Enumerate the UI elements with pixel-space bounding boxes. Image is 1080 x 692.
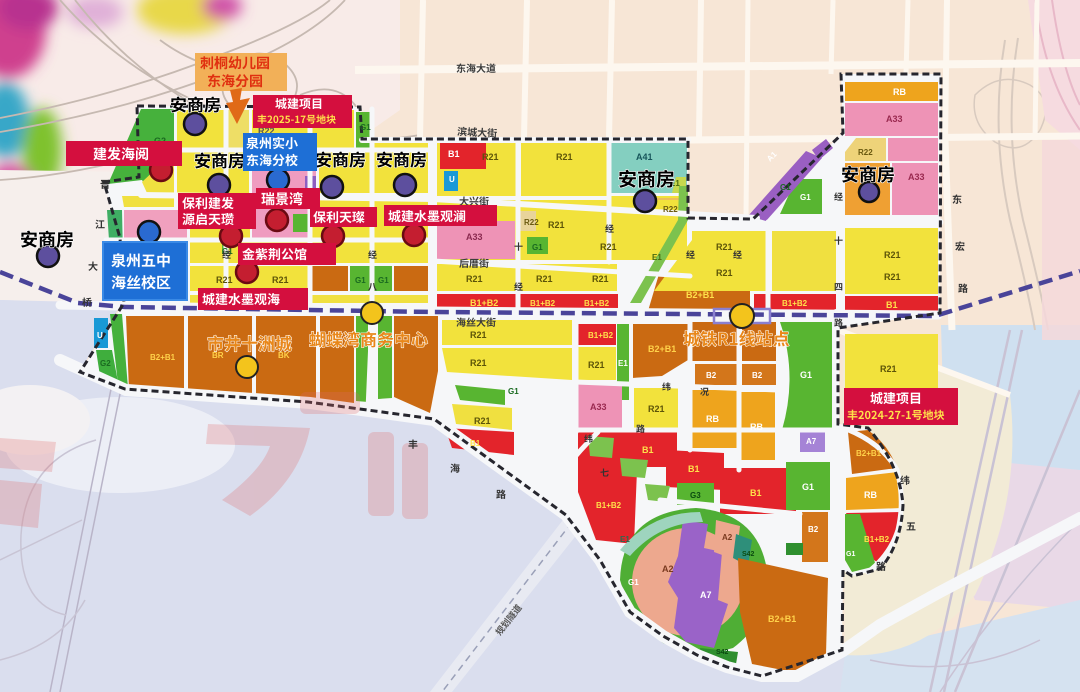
svg-text:R21: R21 (592, 274, 609, 284)
svg-text:B1+B2: B1+B2 (596, 501, 622, 510)
svg-text:R22: R22 (858, 148, 873, 157)
svg-text:G1: G1 (378, 276, 389, 285)
svg-text:B1+B2: B1+B2 (782, 299, 808, 308)
svg-text:E1: E1 (618, 359, 628, 368)
svg-text:E1: E1 (620, 535, 630, 544)
svg-text:R21: R21 (470, 358, 487, 368)
svg-text:B1: B1 (642, 445, 654, 455)
svg-text:BK: BK (278, 351, 290, 360)
svg-text:B2+B1: B2+B1 (686, 290, 714, 300)
svg-text:G1: G1 (846, 551, 855, 558)
svg-text:R21: R21 (884, 250, 901, 260)
svg-text:G1: G1 (532, 243, 543, 252)
svg-text:B1+B2: B1+B2 (864, 535, 890, 544)
svg-text:RB: RB (864, 490, 877, 500)
svg-text:B1: B1 (470, 439, 481, 448)
svg-text:R21: R21 (466, 274, 483, 284)
svg-text:R21: R21 (216, 275, 233, 285)
svg-text:RB: RB (893, 87, 906, 97)
svg-text:R21: R21 (600, 242, 617, 252)
svg-text:A7: A7 (806, 437, 817, 446)
svg-text:B2: B2 (706, 371, 717, 380)
svg-text:A41: A41 (636, 152, 653, 162)
svg-text:R21: R21 (482, 152, 499, 162)
svg-text:A7: A7 (700, 590, 712, 600)
svg-text:B1: B1 (886, 300, 898, 310)
svg-text:U: U (97, 331, 103, 340)
svg-text:B1+B2: B1+B2 (470, 298, 498, 308)
svg-text:G1: G1 (628, 578, 639, 587)
svg-text:RB: RB (750, 422, 763, 432)
svg-text:R22: R22 (663, 205, 678, 214)
svg-text:G2: G2 (100, 359, 111, 368)
svg-text:B2: B2 (752, 371, 763, 380)
svg-text:G1: G1 (800, 193, 811, 202)
svg-text:R21: R21 (474, 416, 491, 426)
svg-text:G1: G1 (800, 370, 812, 380)
svg-text:A33: A33 (590, 402, 607, 412)
svg-text:R21: R21 (716, 268, 733, 278)
svg-text:G1: G1 (355, 276, 366, 285)
svg-text:U: U (449, 175, 455, 184)
svg-text:R21: R21 (648, 404, 665, 414)
svg-text:S42: S42 (742, 551, 755, 558)
svg-text:B2+B1: B2+B1 (648, 344, 676, 354)
svg-text:R21: R21 (470, 330, 487, 340)
svg-text:R21: R21 (884, 272, 901, 282)
svg-text:G1: G1 (508, 387, 519, 396)
svg-text:R21: R21 (716, 242, 733, 252)
svg-text:B2+B1: B2+B1 (150, 353, 176, 362)
svg-text:G3: G3 (690, 491, 701, 500)
svg-text:B1+B2: B1+B2 (530, 299, 556, 308)
svg-text:R21: R21 (556, 152, 573, 162)
svg-text:B1+B2: B1+B2 (588, 331, 614, 340)
svg-text:B1+B2: B1+B2 (584, 299, 610, 308)
svg-text:G1: G1 (802, 482, 814, 492)
svg-text:B2+B1: B2+B1 (856, 449, 882, 458)
svg-text:B1: B1 (688, 464, 700, 474)
svg-text:S42: S42 (716, 649, 729, 656)
svg-text:R22: R22 (524, 218, 539, 227)
svg-text:E1: E1 (652, 253, 662, 262)
svg-text:A33: A33 (466, 232, 483, 242)
svg-text:B1: B1 (448, 149, 460, 159)
svg-text:A33: A33 (886, 114, 903, 124)
svg-text:G1: G1 (360, 123, 371, 132)
svg-text:RB: RB (706, 414, 719, 424)
svg-text:B2+B1: B2+B1 (768, 614, 796, 624)
svg-text:R21: R21 (272, 275, 289, 285)
svg-text:R21: R21 (548, 220, 565, 230)
svg-text:A2: A2 (722, 533, 733, 542)
svg-text:B2: B2 (808, 525, 819, 534)
svg-text:G1: G1 (780, 183, 791, 192)
svg-text:B1: B1 (750, 488, 762, 498)
svg-text:A2: A2 (662, 564, 674, 574)
svg-text:R21: R21 (588, 360, 605, 370)
svg-text:R21: R21 (536, 274, 553, 284)
svg-text:A33: A33 (908, 172, 925, 182)
svg-text:R21: R21 (880, 364, 897, 374)
svg-text:BR: BR (212, 351, 224, 360)
